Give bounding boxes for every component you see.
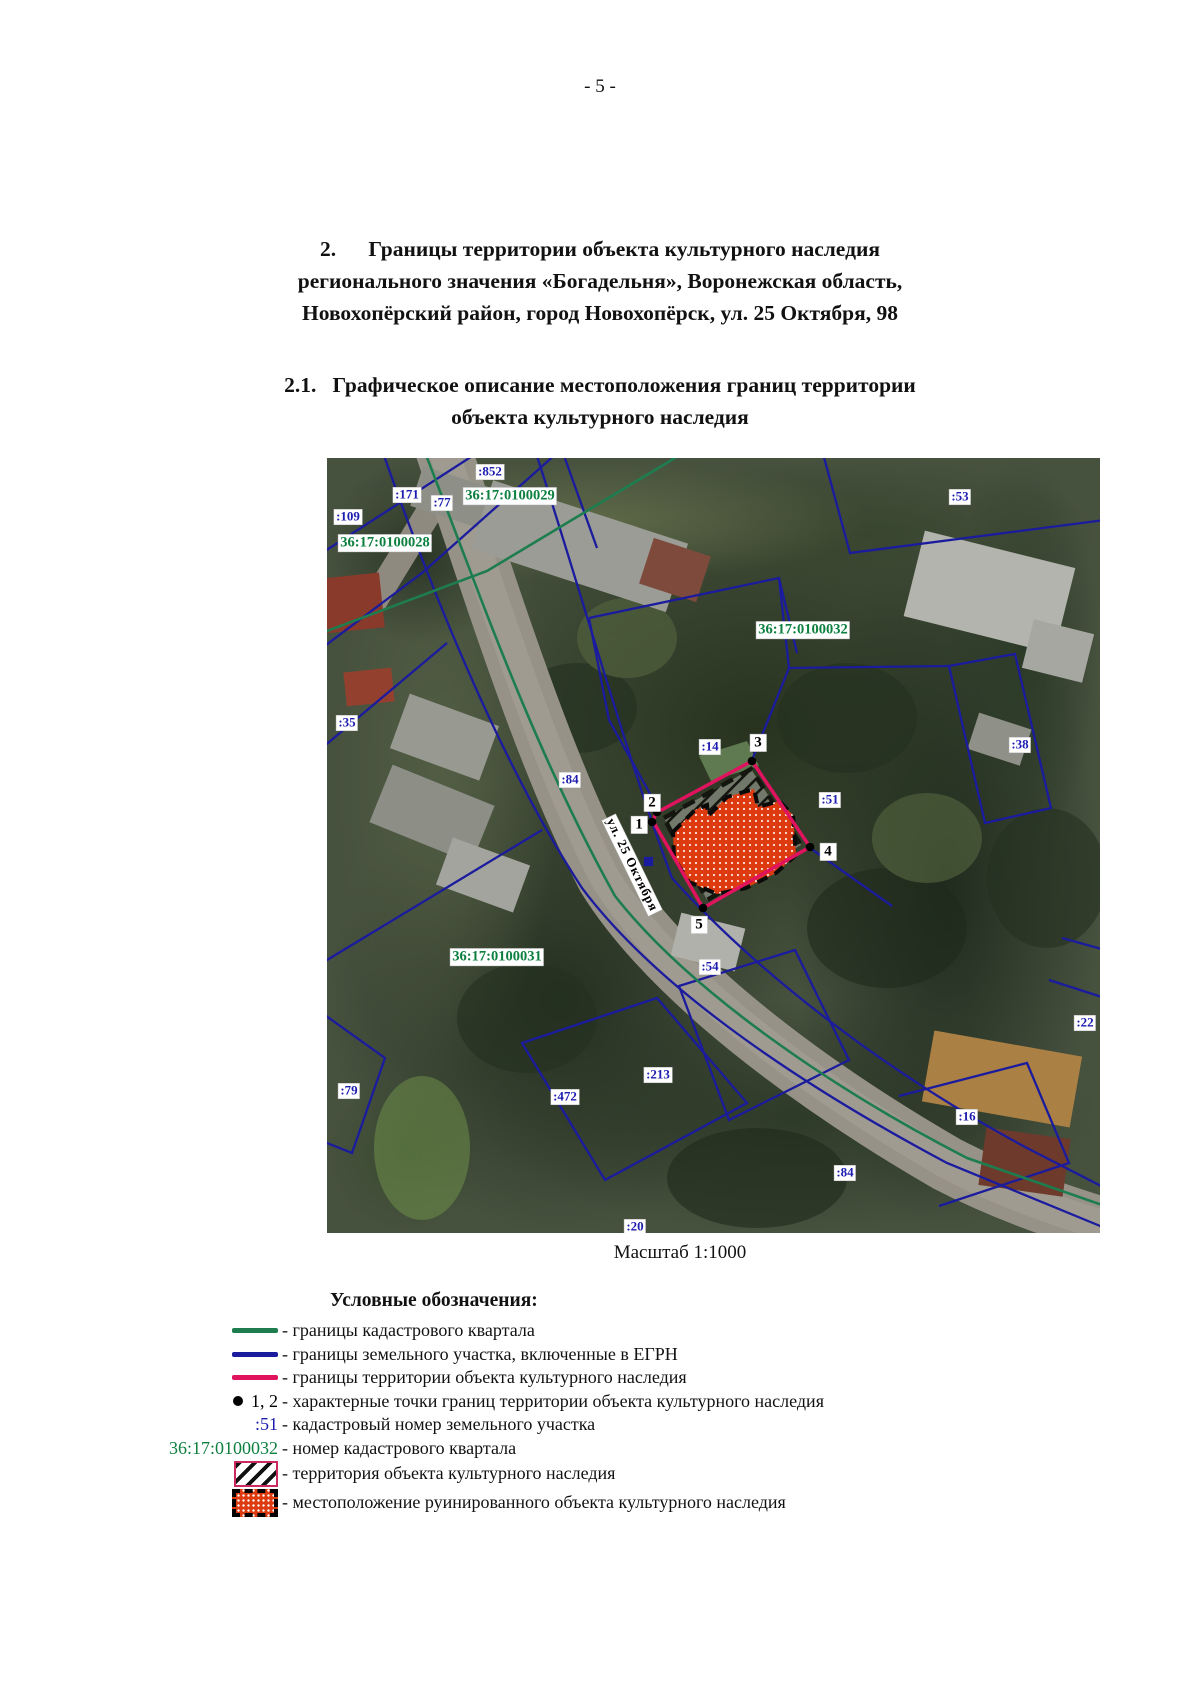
parcel-number-swatch: :51	[255, 1414, 278, 1435]
section-heading-line3: Новохопёрский район, город Новохопёрск, …	[180, 297, 1020, 329]
quarter-label: 36:17:0100032	[756, 622, 849, 639]
blue-line-swatch	[232, 1352, 278, 1357]
point-numbers-swatch: 1, 2	[251, 1391, 278, 1412]
hatch-swatch	[234, 1461, 278, 1487]
legend: Условные обозначения: - границы кадастро…	[190, 1290, 1090, 1518]
parcel-label: :53	[949, 490, 970, 505]
parcel-label: :35	[336, 716, 357, 731]
point-dot-swatch	[233, 1396, 243, 1406]
page-number: - 5 -	[0, 76, 1200, 98]
section-heading: 2. Границы территории объекта культурног…	[180, 233, 1020, 329]
subsection-heading-line2: объекта культурного наследия	[180, 401, 1020, 433]
legend-row-parcel-line: - границы земельного участка, включенные…	[190, 1343, 1090, 1367]
legend-label: - характерные точки границ территории об…	[282, 1391, 824, 1412]
subsection-heading: 2.1. Графическое описание местоположения…	[180, 369, 1020, 433]
parcel-label: :84	[834, 1166, 855, 1181]
parcel-label: :54	[699, 960, 720, 975]
map-scale-caption: Масштаб 1:1000	[280, 1242, 1080, 1264]
legend-label: - территория объекта культурного наследи…	[282, 1463, 615, 1484]
legend-row-ruin: - местоположение руинированного объекта …	[190, 1487, 1090, 1518]
ruin-swatch	[232, 1489, 278, 1517]
crimson-line-swatch	[232, 1375, 278, 1380]
legend-label: - кадастровый номер земельного участка	[282, 1414, 595, 1435]
legend-row-quarter-line: - границы кадастрового квартала	[190, 1319, 1090, 1343]
legend-label: - границы земельного участка, включенные…	[282, 1344, 678, 1365]
legend-rows: - границы кадастрового квартала - границ…	[190, 1319, 1090, 1518]
legend-row-quarter-number: 36:17:0100032 - номер кадастрового кварт…	[190, 1437, 1090, 1461]
parcel-label: :14	[699, 740, 720, 755]
boundary-point-label: 3	[750, 734, 766, 751]
map: :852:171:77:109:53:35:38:84:14:51:54:79:…	[327, 458, 1100, 1233]
legend-label: - номер кадастрового квартала	[282, 1438, 516, 1459]
legend-label: - границы территории объекта культурного…	[282, 1367, 687, 1388]
parcel-label: :16	[956, 1110, 977, 1125]
legend-row-heritage-line: - границы территории объекта культурного…	[190, 1366, 1090, 1390]
legend-row-parcel-number: :51 - кадастровый номер земельного участ…	[190, 1413, 1090, 1437]
legend-title: Условные обозначения:	[330, 1290, 1090, 1312]
parcel-label: :84	[559, 773, 580, 788]
legend-label: - границы кадастрового квартала	[282, 1320, 535, 1341]
parcel-label: :109	[334, 510, 362, 525]
parcel-label: :213	[644, 1068, 672, 1083]
legend-row-points: 1, 2 - характерные точки границ территор…	[190, 1390, 1090, 1414]
quarter-label: 36:17:0100029	[463, 488, 556, 505]
parcel-label: :171	[393, 488, 421, 503]
cadastral-map-graphic	[327, 458, 1100, 1233]
parcel-label: :38	[1009, 738, 1030, 753]
subsection-heading-line1: 2.1. Графическое описание местоположения…	[180, 369, 1020, 401]
boundary-point-label: 2	[644, 794, 660, 811]
section-heading-line1: 2. Границы территории объекта культурног…	[180, 233, 1020, 265]
quarter-label: 36:17:0100031	[450, 949, 543, 966]
parcel-label: :852	[476, 465, 504, 480]
green-line-swatch	[232, 1328, 278, 1333]
section-heading-line2: регионального значения «Богадельня», Вор…	[180, 265, 1020, 297]
parcel-label: :472	[551, 1090, 579, 1105]
parcel-label: :22	[1074, 1016, 1095, 1031]
parcel-label: :79	[338, 1084, 359, 1099]
boundary-point-label: 5	[691, 916, 707, 933]
parcel-label: :51	[819, 793, 840, 808]
boundary-point-label: 1	[631, 816, 647, 833]
legend-row-territory: - территория объекта культурного наследи…	[190, 1460, 1090, 1487]
parcel-label: :77	[431, 496, 452, 511]
parcel-label: :20	[624, 1220, 645, 1233]
quarter-label: 36:17:0100028	[338, 535, 431, 552]
document-page: - 5 - 2. Границы территории объекта куль…	[0, 0, 1200, 1708]
legend-label: - местоположение руинированного объекта …	[282, 1492, 786, 1513]
quarter-number-swatch: 36:17:0100032	[169, 1438, 278, 1459]
boundary-point-label: 4	[820, 843, 836, 860]
